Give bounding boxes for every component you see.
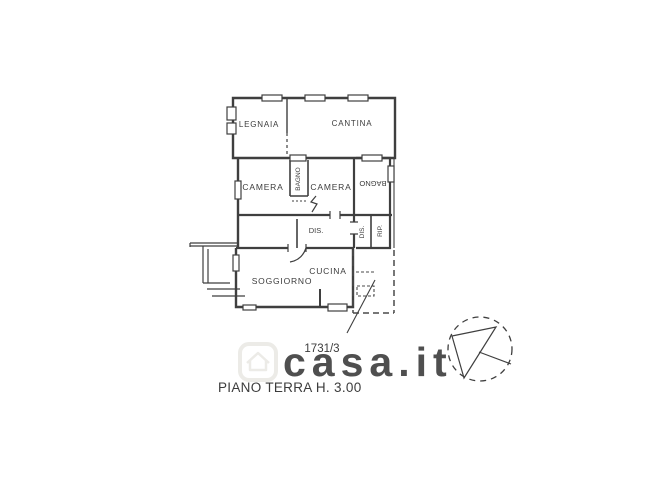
room-label-dis-wing: DIS. [359, 225, 366, 238]
window-wing-east [388, 166, 394, 182]
floorplan-scan-page: casa.it [0, 0, 648, 492]
window-wing-north [362, 155, 382, 161]
chimney-block-1 [227, 107, 236, 120]
room-label-rip: RIP. [377, 225, 384, 237]
window-legnaia [262, 95, 282, 101]
room-label-bagno-middle: BAGNO [295, 167, 302, 190]
window-cucina-south [328, 304, 347, 311]
window-cantina-1 [305, 95, 325, 101]
window-soggiorno-west [233, 255, 239, 271]
room-label-camera-left: CAMERA [242, 182, 283, 192]
window-cantina-2 [348, 95, 368, 101]
room-label-legnaia: LEGNAIA [239, 120, 279, 129]
room-label-bagno-right: BAGNO [359, 179, 386, 188]
room-label-dis-main: DIS. [309, 226, 324, 235]
window-camera-west [235, 181, 241, 199]
window-soggiorno-south [243, 305, 256, 310]
room-label-cucina: CUCINA [309, 266, 346, 276]
room-label-cantina: CANTINA [332, 119, 373, 128]
floorplan-drawing: casa.it [0, 0, 648, 492]
room-label-soggiorno: SOGGIORNO [252, 276, 313, 286]
parcel-number: 1731/3 [304, 343, 339, 355]
floor-caption: PIANO TERRA H. 3.00 [218, 380, 362, 395]
window-bagno-middle [290, 155, 306, 161]
room-label-camera-right: CAMERA [310, 182, 351, 192]
page-background [0, 0, 648, 492]
chimney-block-2 [227, 123, 236, 134]
